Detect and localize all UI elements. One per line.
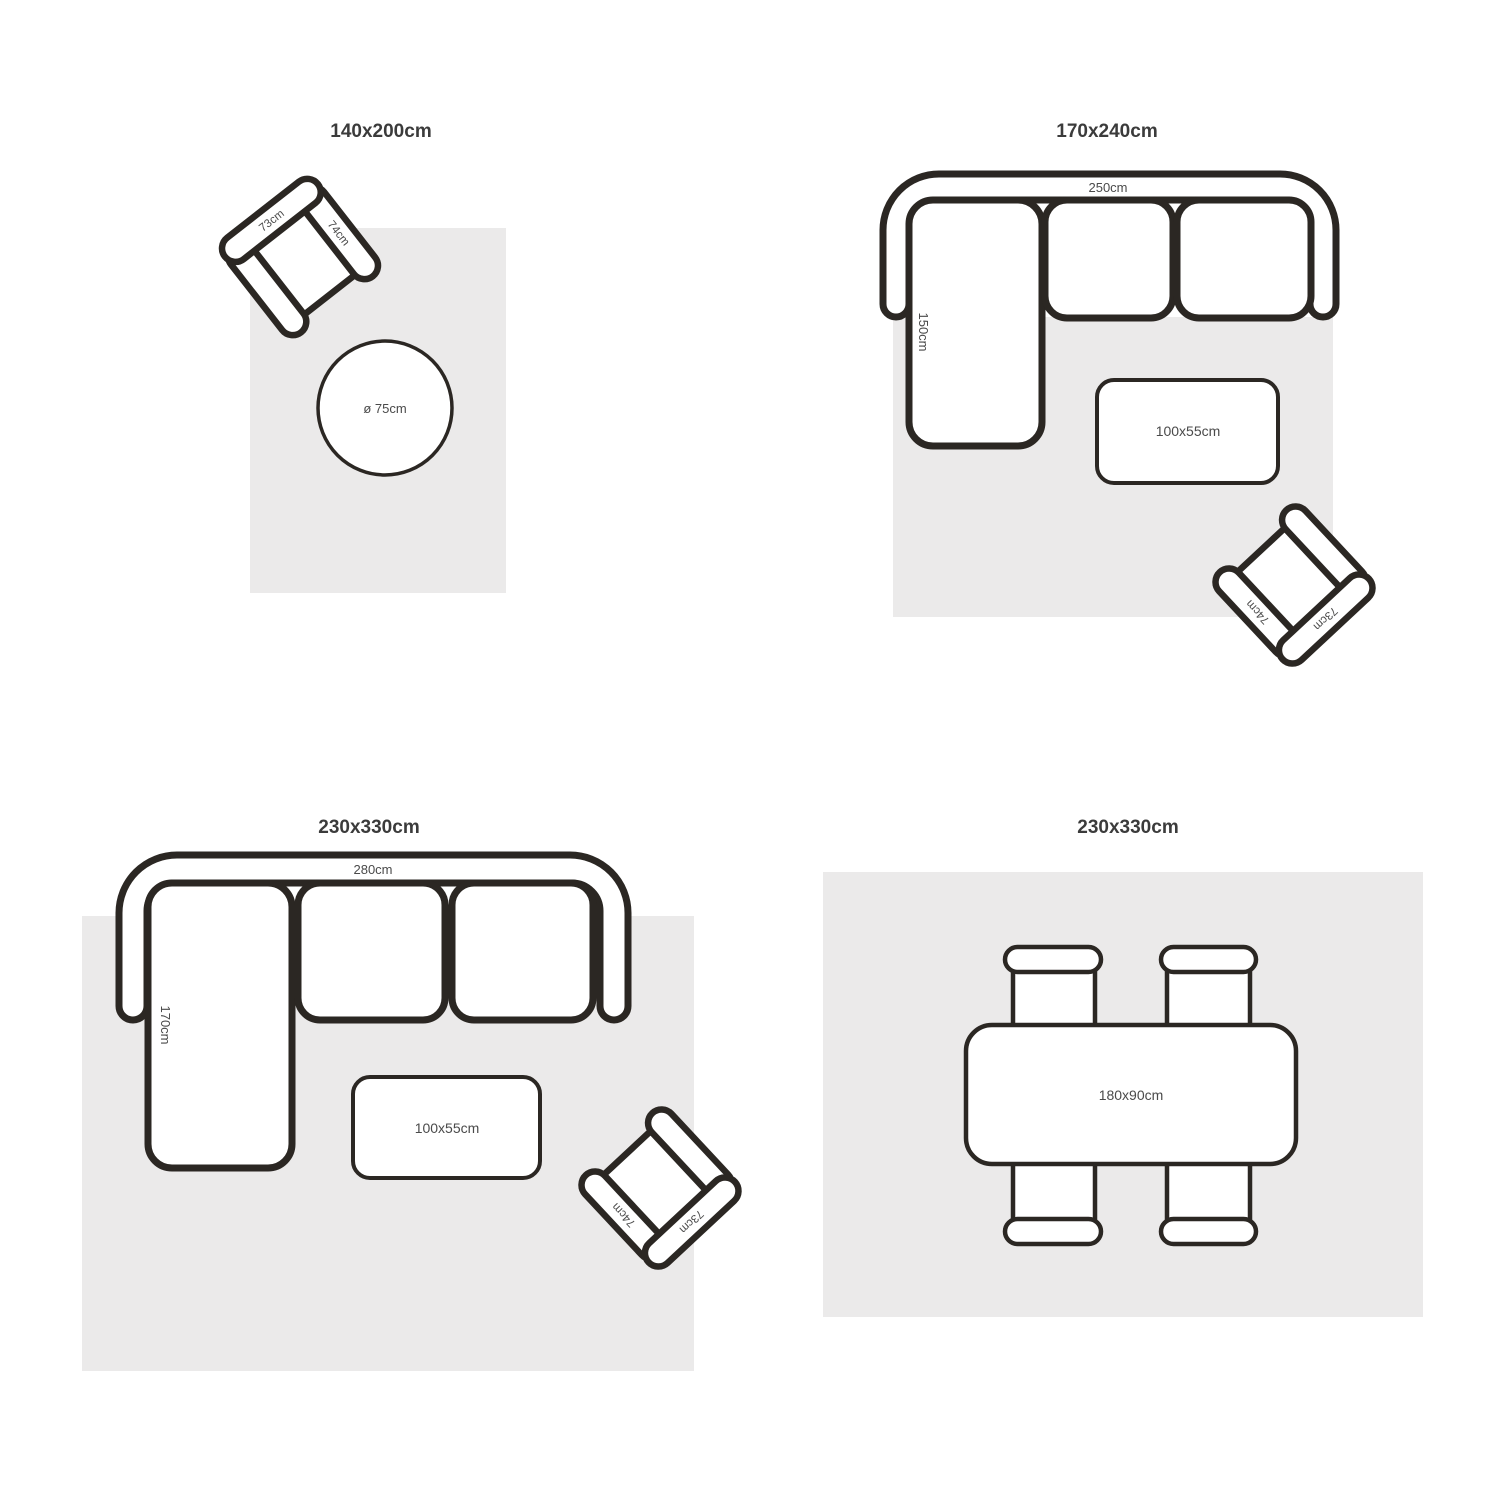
dining-table-label: 180x90cm — [1099, 1087, 1164, 1103]
sofa-seat-cushion — [298, 883, 445, 1020]
panel-title: 170x240cm — [1056, 121, 1157, 142]
sofa-chaise-depth-label: 150cm — [916, 312, 931, 351]
coffee-table-label: 100x55cm — [1156, 423, 1221, 439]
panel-230x330-living: 230x330cm 280cm 170cm 100x55cm 73cm 74cm — [82, 817, 744, 1371]
panel-230x330-dining: 230x330cm 180x90cm — [823, 817, 1423, 1317]
sofa-chaise-depth-label: 170cm — [158, 1005, 173, 1044]
round-side-table-label: ø 75cm — [363, 401, 406, 416]
dining-chair — [1161, 947, 1256, 1028]
rug-size-guide-canvas: 140x200cm 73cm 74cm ø 75cm 170x240cm 250… — [0, 0, 1500, 1500]
panel-title: 230x330cm — [1077, 817, 1178, 838]
dining-chair-backrest — [1005, 947, 1101, 972]
dining-chair-seat — [1167, 1157, 1250, 1227]
coffee-table-label: 100x55cm — [415, 1120, 480, 1136]
dining-chair — [1005, 947, 1101, 1028]
dining-chair-backrest — [1161, 1219, 1256, 1244]
panel-title: 140x200cm — [330, 121, 431, 142]
dining-chair-backrest — [1005, 1219, 1101, 1244]
panel-140x200: 140x200cm 73cm 74cm ø 75cm — [217, 121, 506, 593]
dining-chair — [1005, 1157, 1101, 1244]
sofa-width-label: 250cm — [1088, 180, 1127, 195]
panel-170x240: 170x240cm 250cm 150cm 100x55cm 73cm 74cm — [883, 121, 1378, 669]
rug-size-guide: 140x200cm 73cm 74cm ø 75cm 170x240cm 250… — [0, 0, 1500, 1500]
sofa-seat-cushion — [452, 883, 593, 1020]
sofa-seat-cushion — [1045, 200, 1173, 318]
dining-chair-seat — [1013, 1157, 1095, 1227]
sofa-width-label: 280cm — [353, 862, 392, 877]
dining-chair — [1161, 1157, 1256, 1244]
panel-title: 230x330cm — [318, 817, 419, 838]
sofa-seat-cushion — [1177, 200, 1311, 318]
dining-chair-backrest — [1161, 947, 1256, 972]
